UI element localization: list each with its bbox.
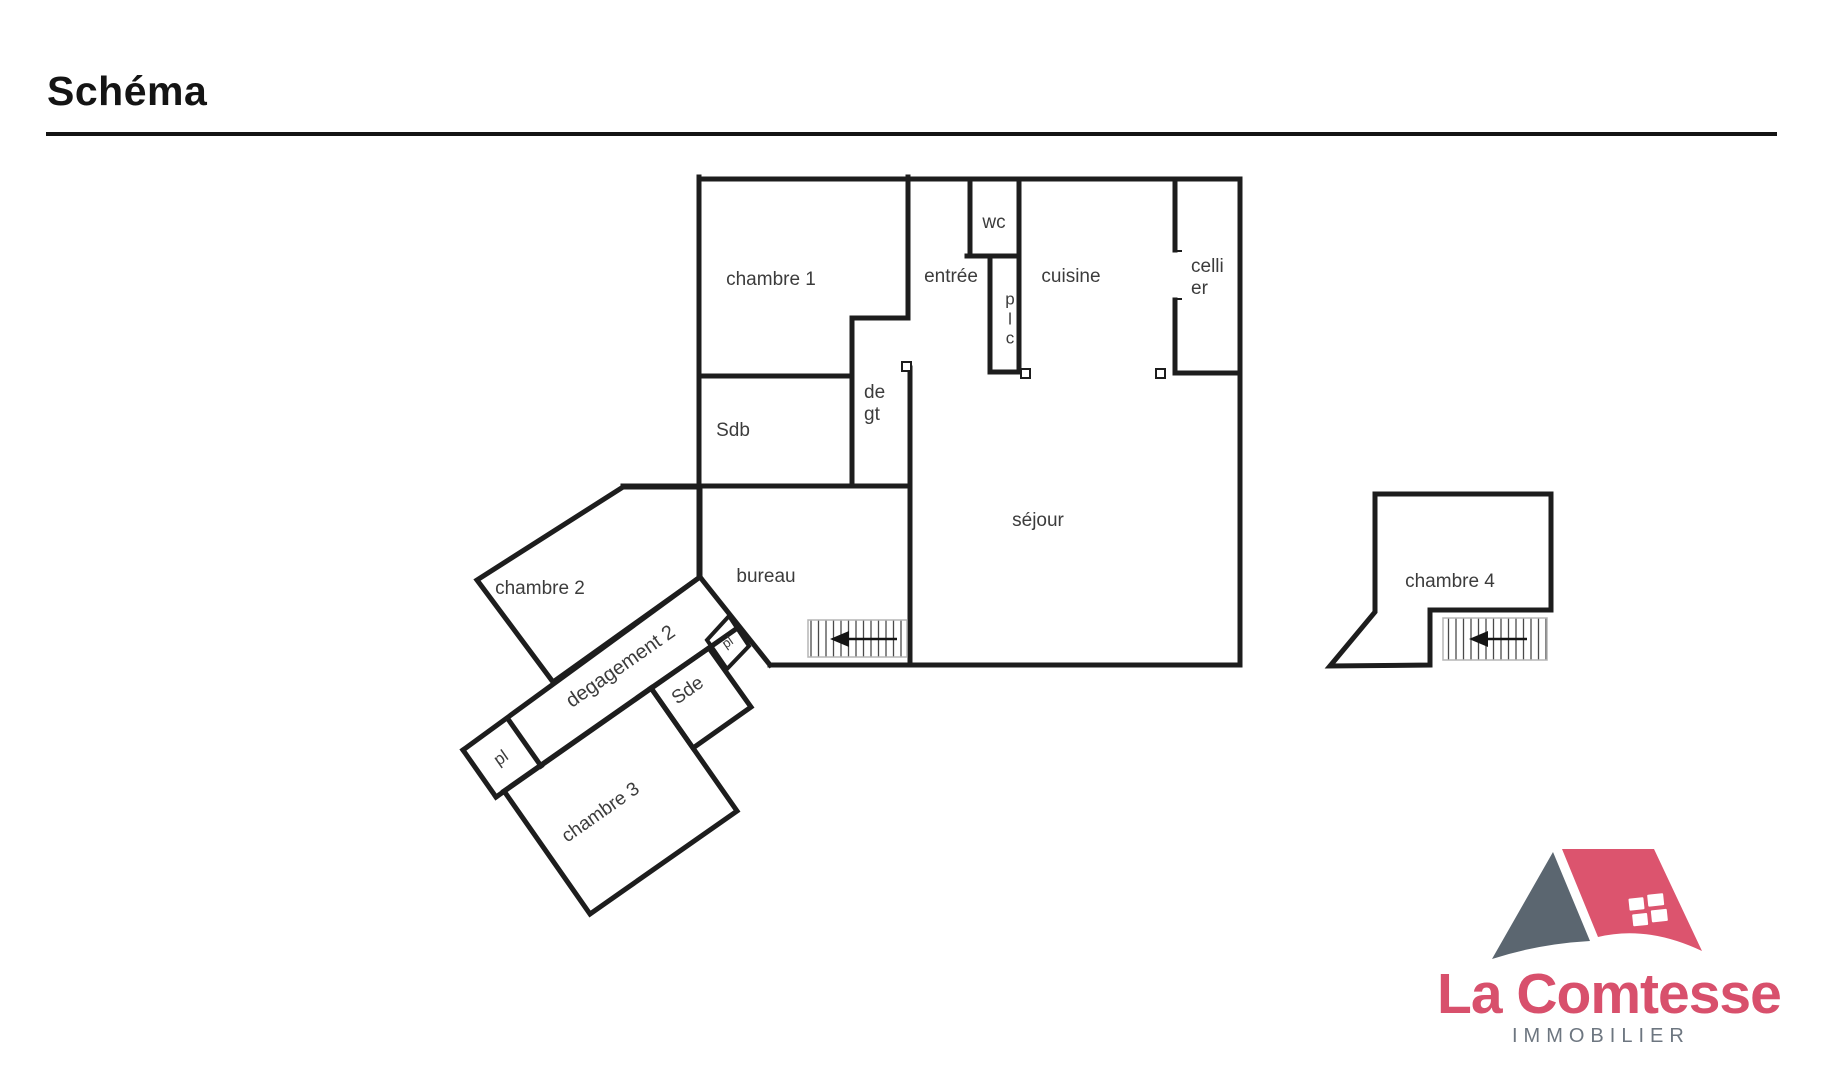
stairs-main-icon bbox=[808, 620, 907, 657]
wall-pl1-divider bbox=[508, 719, 541, 766]
door-marker-icon bbox=[1021, 369, 1030, 378]
room-label-cellier: celli er bbox=[1191, 256, 1224, 300]
room-label-bureau: bureau bbox=[736, 566, 795, 588]
floor-plan-drawing bbox=[0, 0, 1826, 1080]
wall-sde bbox=[651, 648, 751, 748]
room-label-plc: p l c bbox=[1005, 290, 1014, 349]
door-marker-icon bbox=[1156, 369, 1165, 378]
room-label-sejour: séjour bbox=[1012, 510, 1064, 532]
room-label-entree: entrée bbox=[924, 266, 978, 288]
room-label-chambre-1: chambre 1 bbox=[726, 269, 816, 291]
stairs-chambre4-icon bbox=[1443, 618, 1547, 660]
wall-corridor-cap bbox=[463, 750, 496, 797]
logo-tagline-text: IMMOBILIER bbox=[1512, 1025, 1690, 1048]
room-label-chambre-2: chambre 2 bbox=[495, 578, 585, 600]
house-logo-icon bbox=[1492, 849, 1702, 959]
room-label-wc: wc bbox=[982, 212, 1005, 234]
room-label-cuisine: cuisine bbox=[1041, 266, 1100, 288]
door-marker-icon bbox=[902, 362, 911, 371]
cellier-door-ticks bbox=[1175, 251, 1181, 299]
room-label-chambre-4: chambre 4 bbox=[1405, 571, 1495, 593]
room-label-degt: de gt bbox=[864, 382, 885, 426]
logo-brand-text: La Comtesse bbox=[1437, 961, 1781, 1027]
document-page: Schéma bbox=[0, 0, 1826, 1080]
door-markers bbox=[902, 362, 1165, 378]
room-label-sdb: Sdb bbox=[716, 420, 750, 442]
wall-corridor-upper bbox=[463, 577, 700, 750]
